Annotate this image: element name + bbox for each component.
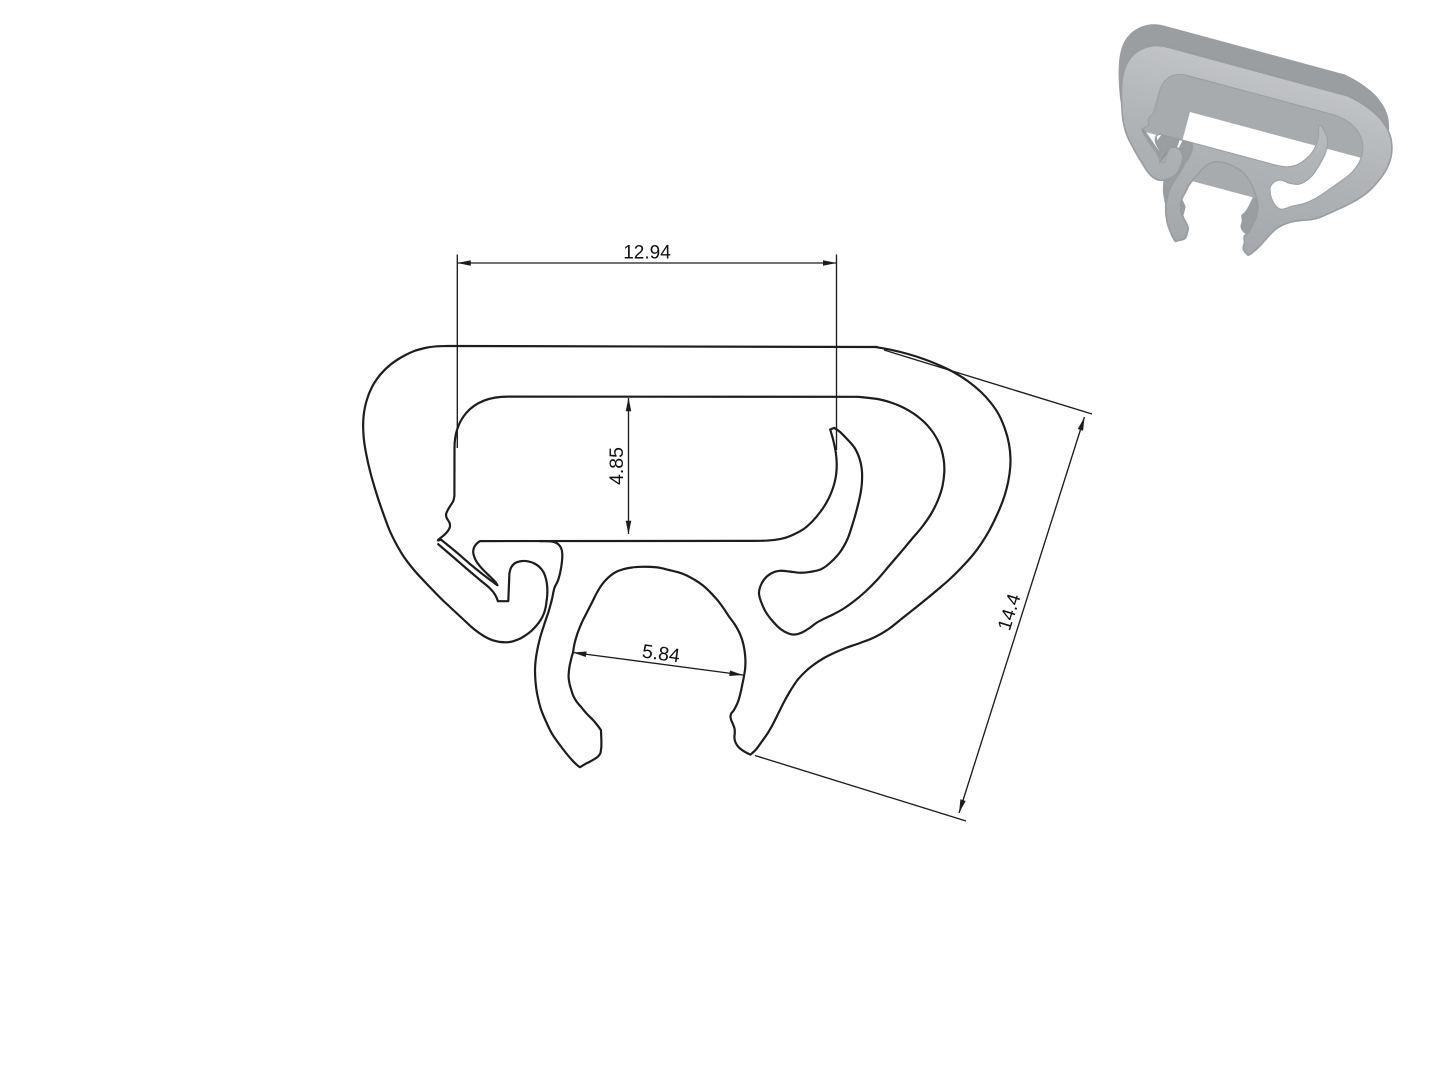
- svg-text:12.94: 12.94: [623, 243, 671, 264]
- svg-text:4.85: 4.85: [606, 447, 628, 485]
